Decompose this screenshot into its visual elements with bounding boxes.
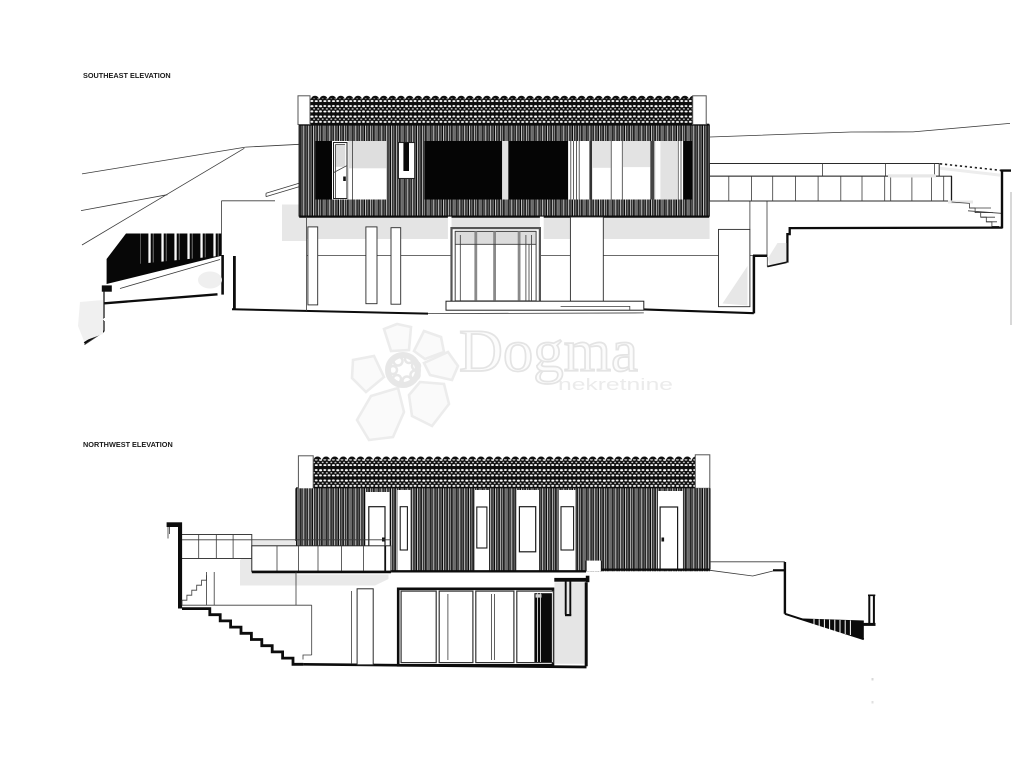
svg-text:SOUTHEAST ELEVATION: SOUTHEAST ELEVATION: [83, 71, 171, 80]
svg-text:NORTHWEST ELEVATION: NORTHWEST ELEVATION: [83, 440, 173, 449]
svg-text:nekretnine: nekretnine: [558, 375, 673, 394]
